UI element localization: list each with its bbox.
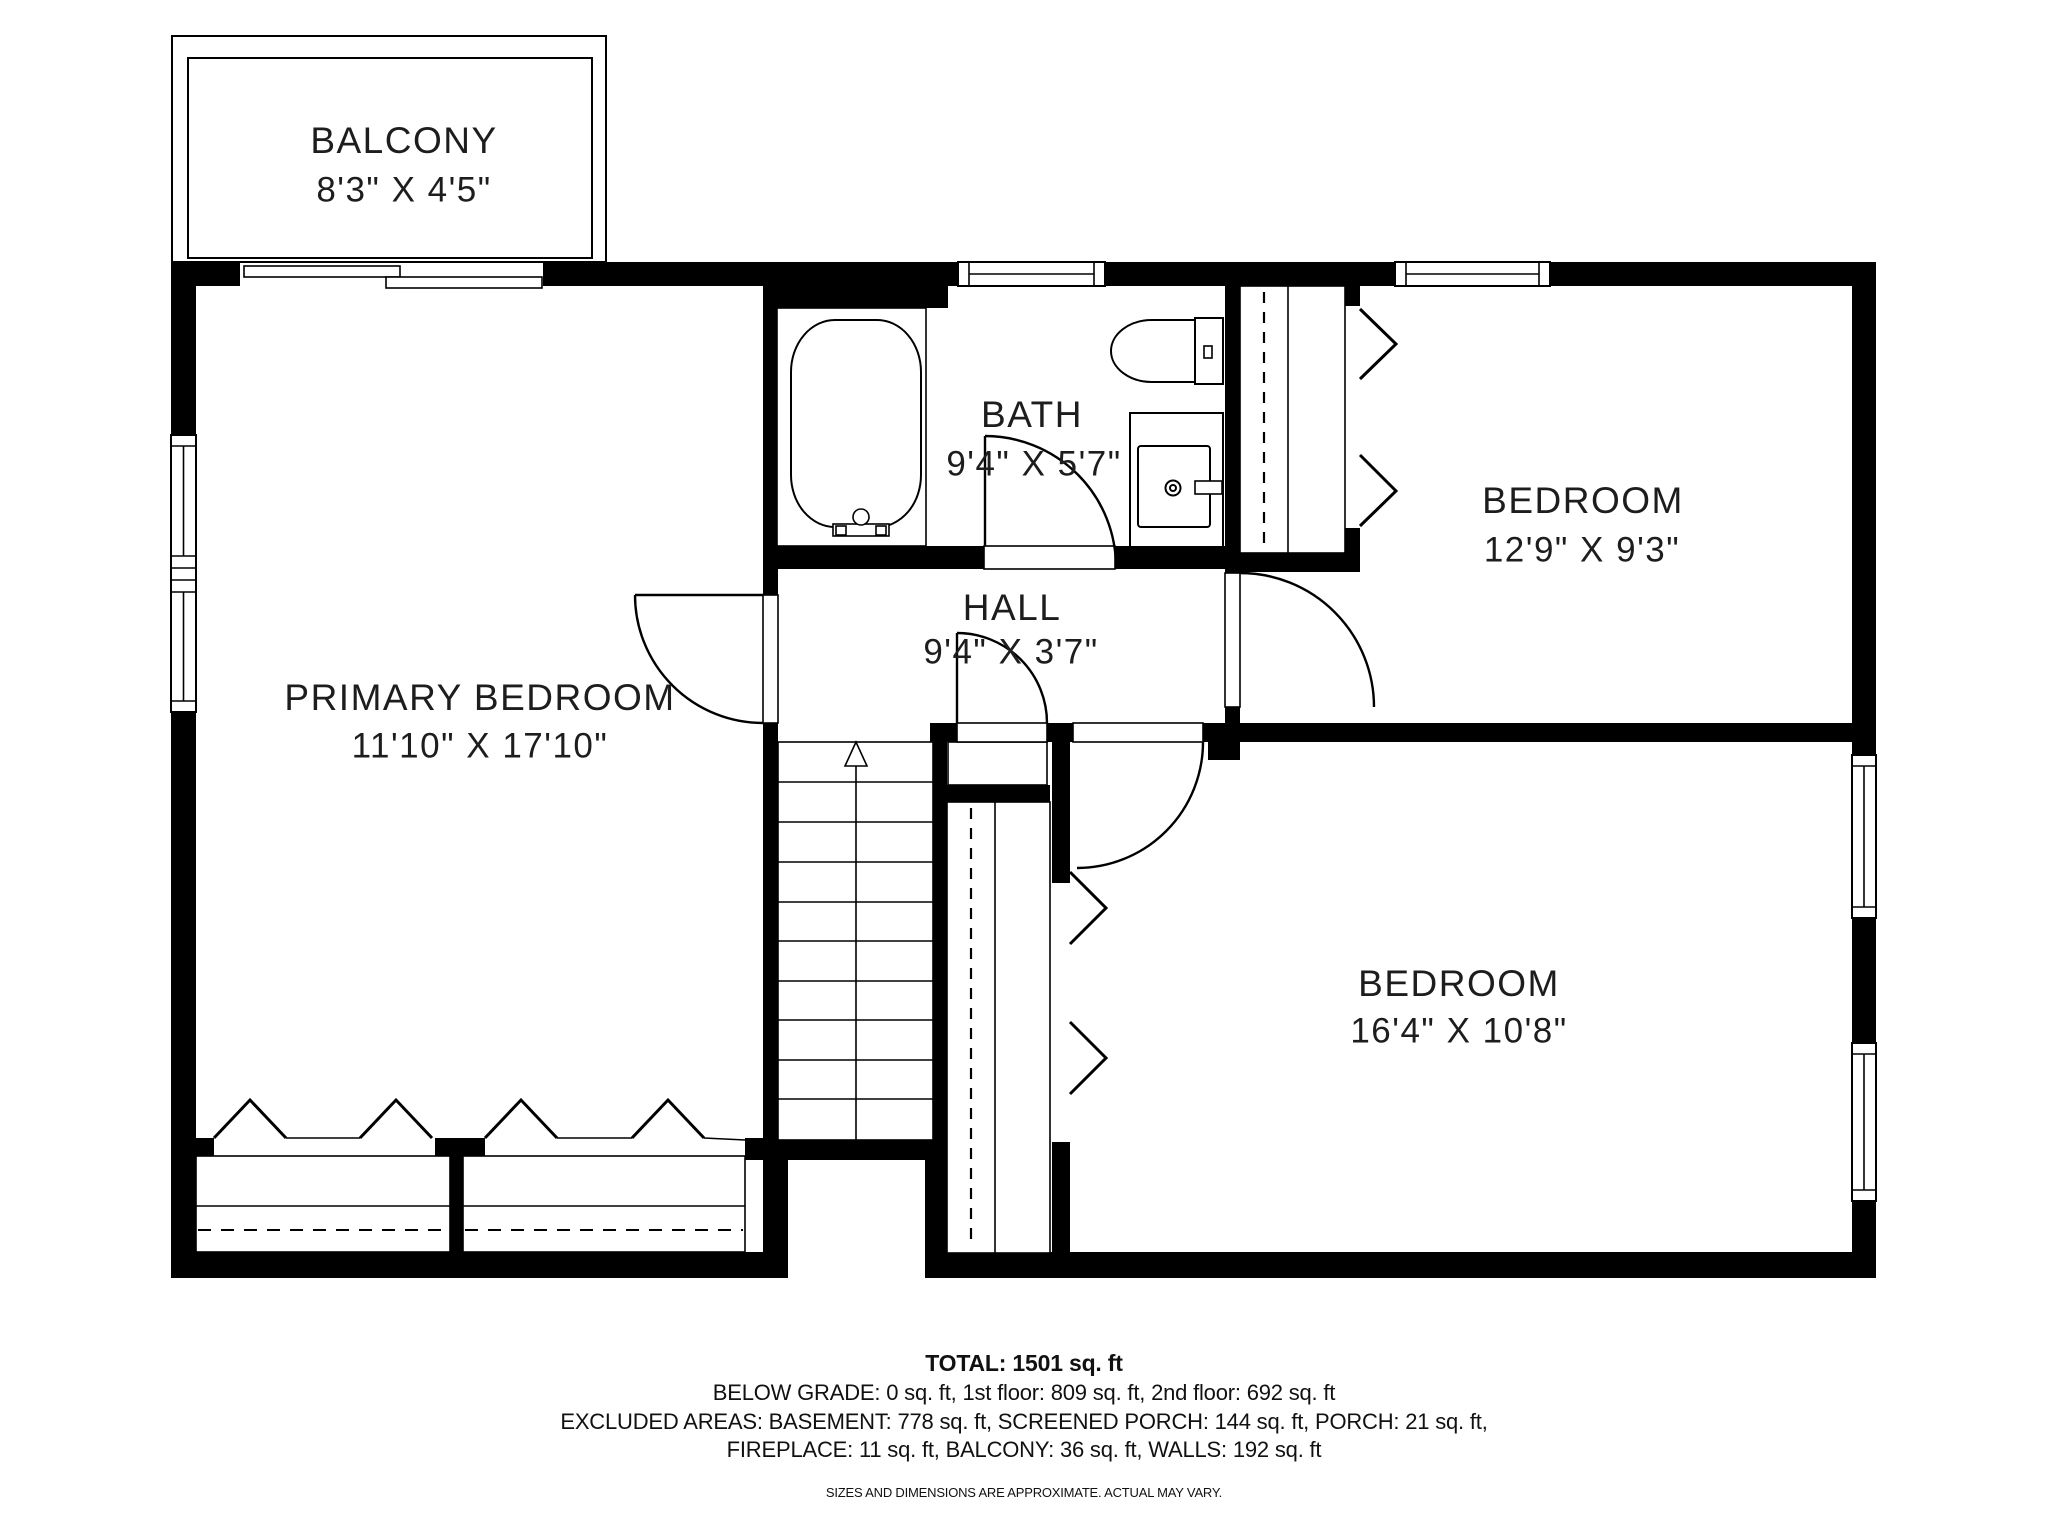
bedroom-bottom-right-dims: 16'4" X 10'8" <box>1350 1011 1567 1050</box>
wall-corner-tab <box>1208 742 1240 760</box>
wall-closet-stub-bottom <box>1052 1142 1070 1253</box>
wall-tub-alcove-top <box>763 286 948 308</box>
wall-primary-stairs <box>763 723 778 1160</box>
wall-bay-stub-left <box>196 1138 214 1156</box>
wall-bath-bedroom <box>1225 707 1240 742</box>
bedroom-bottom-right-label: BEDROOM <box>1358 963 1560 1004</box>
wall-bottom <box>925 1252 1876 1278</box>
tub-alcove <box>777 308 926 546</box>
chimney-closet <box>947 742 1106 1253</box>
footer-disclaimer: SIZES AND DIMENSIONS ARE APPROXIMATE. AC… <box>826 1485 1222 1500</box>
wall-bath-bottom <box>770 546 984 569</box>
bedroom-tr-closet <box>1240 286 1396 553</box>
window-right-upper <box>1852 755 1876 918</box>
balcony-label: BALCONY <box>310 120 497 161</box>
tub-faucet <box>853 509 869 525</box>
wall-left <box>171 262 196 435</box>
wall-top <box>1105 262 1395 286</box>
wall-closet-stub-top <box>1052 723 1070 883</box>
wall-bottom <box>171 1252 788 1278</box>
wall-bay-pillar <box>435 1138 485 1156</box>
sink-drain <box>1170 485 1176 491</box>
hall-dims: 9'4" X 3'7" <box>923 632 1098 671</box>
bifold-door-icon <box>1070 872 1106 944</box>
wall-bay-pillar <box>450 1156 463 1252</box>
floor-plan-drawing: BALCONY 8'3" X 4'5" PRIMARY BEDROOM 11'1… <box>0 0 2048 1536</box>
floor-plan-page: BALCONY 8'3" X 4'5" PRIMARY BEDROOM 11'1… <box>0 0 2048 1536</box>
bedroom-top-right-dims: 12'9" X 9'3" <box>1484 530 1680 569</box>
wall-left <box>171 712 196 1278</box>
balcony <box>172 36 606 288</box>
sink-soap-dish <box>1195 481 1222 494</box>
wall-bay-stub-right <box>745 1138 765 1160</box>
footer-total: TOTAL: 1501 sq. ft <box>925 1350 1123 1376</box>
wall-bedrooms-divider <box>1203 723 1852 742</box>
balcony-dims: 8'3" X 4'5" <box>316 170 491 209</box>
bay-window-right <box>463 1100 745 1252</box>
bath-dims: 9'4" X 5'7" <box>946 444 1121 483</box>
toilet-bowl <box>1111 320 1195 382</box>
wall-bath-bottom <box>1115 546 1225 569</box>
bathtub-icon <box>777 308 926 546</box>
bifold-door-icon <box>1360 455 1396 526</box>
wall-top <box>543 262 958 286</box>
sink-faucet <box>1166 481 1181 496</box>
sliding-door-panel <box>244 266 400 277</box>
bifold-door-icon <box>1070 1022 1106 1094</box>
wall-tr-closet-stub <box>1345 286 1360 306</box>
window-left-wall <box>171 435 196 712</box>
hall-label: HALL <box>963 587 1062 628</box>
wall-void-right <box>925 1160 947 1278</box>
bay-window-left <box>196 1100 450 1252</box>
closet-outline <box>947 802 1050 1253</box>
bedroom-top-right-label: BEDROOM <box>1482 480 1684 521</box>
wall-chimney-top <box>933 785 1050 802</box>
window-bath <box>958 262 1105 286</box>
footer-grade-line: BELOW GRADE: 0 sq. ft, 1st floor: 809 sq… <box>713 1380 1336 1405</box>
wall-stairs-bottom <box>745 1140 947 1160</box>
stairs <box>778 742 933 1140</box>
primary-bedroom-label: PRIMARY BEDROOM <box>284 677 675 718</box>
wall-hall-bottom <box>930 723 957 742</box>
toilet-flush-button <box>1204 346 1212 358</box>
sink-vanity-icon <box>1130 413 1223 548</box>
bifold-door-icon <box>1360 309 1396 379</box>
wall-bath-bedroom <box>1225 286 1240 573</box>
window-bedroom-top <box>1395 262 1550 286</box>
bath-label: BATH <box>981 394 1083 435</box>
wall-right <box>1852 262 1876 755</box>
primary-bedroom-dims: 11'10" X 17'10" <box>352 726 609 765</box>
door-bedroom-top-right <box>1225 573 1374 707</box>
window-right-lower <box>1852 1043 1876 1201</box>
sliding-door-panel <box>386 277 542 288</box>
wall-top <box>1550 262 1876 286</box>
wall-void-left <box>763 1160 788 1278</box>
wall-right <box>1852 918 1876 1043</box>
footer-fireplace-line: FIREPLACE: 11 sq. ft, BALCONY: 36 sq. ft… <box>727 1437 1322 1462</box>
chimney-niche <box>948 742 1047 785</box>
toilet-icon <box>1111 318 1223 384</box>
footer-summary: TOTAL: 1501 sq. ft BELOW GRADE: 0 sq. ft… <box>560 1350 1487 1500</box>
closet-outline <box>1240 286 1345 553</box>
wall-tr-closet-stub <box>1345 528 1360 553</box>
wall-tr-closet-bottom <box>1240 553 1360 572</box>
door-bedroom-bottom-right <box>1073 723 1203 868</box>
footer-excluded-line: EXCLUDED AREAS: BASEMENT: 778 sq. ft, SC… <box>560 1409 1487 1434</box>
